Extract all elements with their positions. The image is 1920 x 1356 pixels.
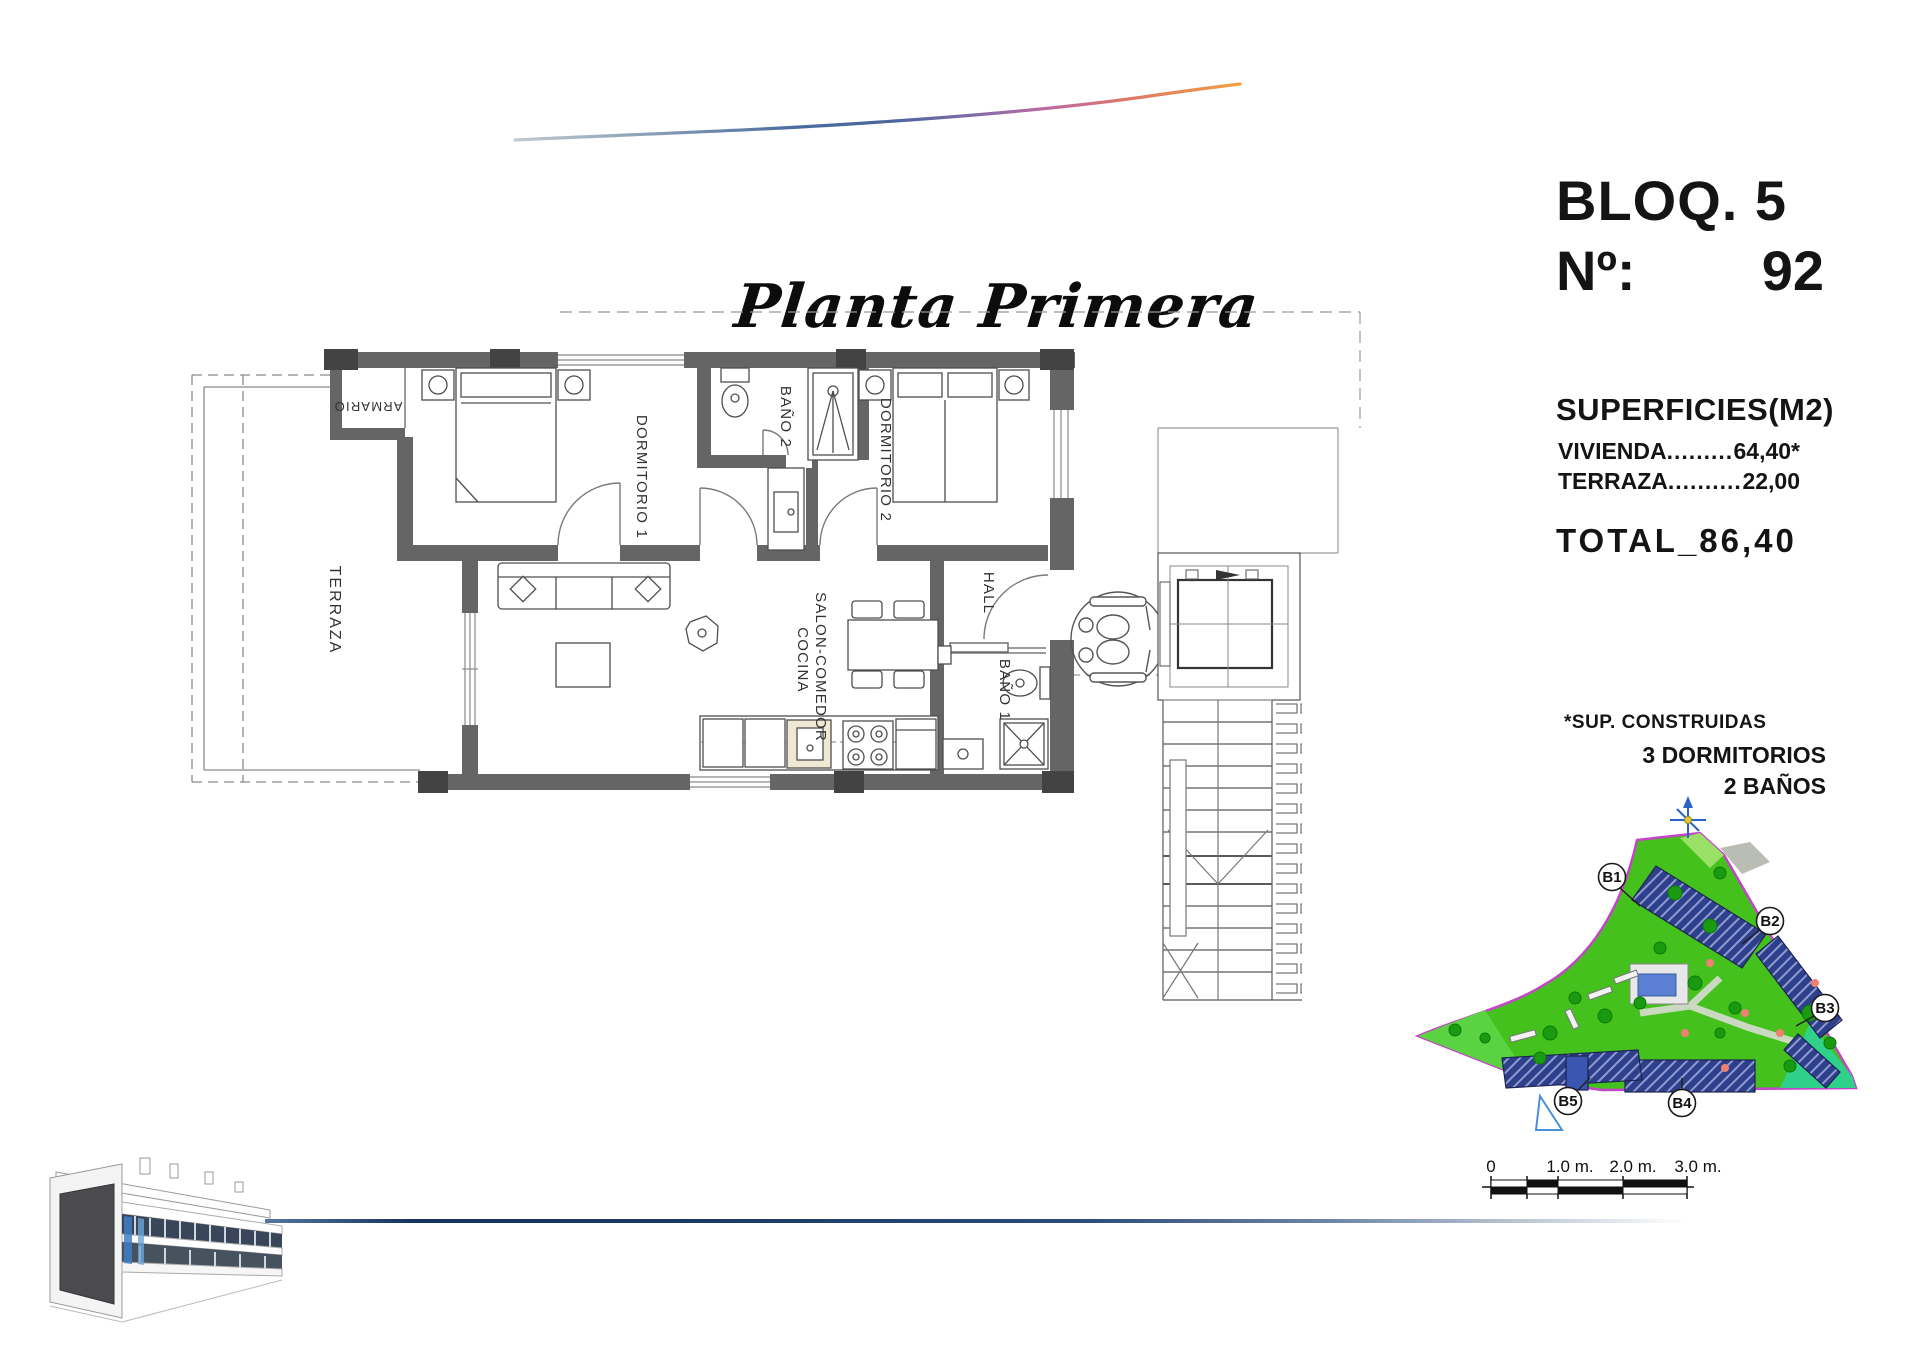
block-marker-b3: B3 — [1815, 1000, 1834, 1017]
room-label-hall: HALL — [980, 572, 997, 614]
scale-label-0: 0 — [1486, 1157, 1495, 1176]
plan-sheet: Planta Primera — [0, 0, 1920, 1356]
total-row: TOTAL _ 86,40 — [1556, 522, 1794, 560]
unit-number-value: 92 — [1762, 238, 1824, 303]
furniture-dormitorio-1 — [422, 368, 590, 502]
surface-value: 64,40* — [1733, 438, 1800, 465]
surface-value: 22,00 — [1742, 468, 1800, 495]
dot-leader: .................. — [1667, 438, 1734, 465]
block-marker-b1: B1 — [1602, 869, 1621, 886]
unit-number-label: Nº: — [1556, 238, 1636, 303]
block-label: BLOQ. 5 — [1556, 168, 1826, 233]
elevator — [1158, 553, 1300, 700]
surface-row-vivienda: VIVIENDA .................. 64,40* — [1558, 438, 1800, 465]
wheelchair-accessibility-icon — [1071, 592, 1165, 686]
unit-number-row: Nº: 92 — [1556, 238, 1824, 303]
room-label-bano-2: BAÑO 2 — [777, 386, 794, 448]
scale-label-3m: 3.0 m. — [1674, 1157, 1721, 1176]
scale-bar: 0 1.0 m. 2.0 m. 3.0 m. — [1478, 1156, 1738, 1216]
compass-icon — [1670, 796, 1706, 838]
scale-label-1m: 1.0 m. — [1546, 1157, 1593, 1176]
surface-name: VIVIENDA — [1558, 438, 1667, 465]
feature-dormitorios: 3 DORMITORIOS — [1560, 740, 1826, 771]
footer-rule — [265, 1219, 1745, 1223]
dot-leader: .............. — [1668, 468, 1743, 495]
surfaces-title: SUPERFICIES(M2) — [1556, 392, 1834, 428]
total-separator: _ — [1678, 522, 1699, 560]
surface-row-terraza: TERRAZA .............. 22,00 — [1558, 468, 1800, 495]
room-label-dormitorio-2: DORMITORIO 2 — [877, 398, 894, 522]
block-marker-b2: B2 — [1760, 913, 1779, 930]
room-label-armario: ARMARIO — [333, 399, 402, 414]
site-plan: B1 B2 B3 B4 B5 — [1390, 778, 1920, 1158]
room-label-dormitorio-1: DORMITORIO 1 — [633, 415, 650, 539]
block-marker-b4: B4 — [1672, 1095, 1692, 1112]
surface-name: TERRAZA — [1558, 468, 1668, 495]
block-marker-b5: B5 — [1558, 1093, 1577, 1110]
construidas-footnote: *SUP. CONSTRUIDAS — [1564, 712, 1766, 734]
building-render — [20, 1138, 350, 1356]
room-label-cocina: COCINA — [794, 627, 811, 693]
room-label-salon-comedor: SALON-COMEDOR — [812, 592, 829, 742]
room-label-bano-1: BAÑO 1 — [996, 659, 1013, 721]
total-label: TOTAL — [1556, 522, 1678, 560]
room-label-terraza: TERRAZA — [326, 566, 343, 655]
staircase — [1163, 700, 1302, 1000]
total-value: 86,40 — [1699, 522, 1797, 560]
furniture-salon-cocina — [498, 563, 951, 770]
scale-label-2m: 2.0 m. — [1609, 1157, 1656, 1176]
